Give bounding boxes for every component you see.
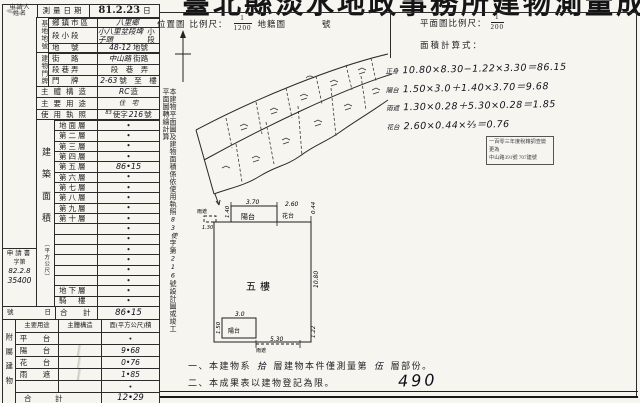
attached-area: • bbox=[101, 381, 159, 392]
floor-row: 第五層 86•15 bbox=[55, 161, 159, 171]
location-scale-label: 比例尺： bbox=[190, 18, 228, 30]
info-row-label: 鄉鎮市區 bbox=[49, 19, 97, 27]
flower-stand-width: 2.60 bbox=[285, 201, 299, 208]
info-row-value: 段 巷 弄 bbox=[97, 65, 159, 75]
floor-area-group-label: 建築面積 （平方公尺） bbox=[37, 120, 55, 306]
attached-structure bbox=[58, 381, 101, 392]
calc-line-expression: 1.50×3.0＋1.40×3.70＝9.68 bbox=[403, 78, 549, 95]
application-label: 申請書 bbox=[7, 251, 33, 258]
floor-area-value: • bbox=[127, 256, 130, 264]
printed-suffix: 地號 bbox=[133, 44, 148, 52]
info-row: 門 牌 2-63 號 至 樓 bbox=[49, 75, 159, 86]
calc-line: 雨遮 1.30×0.28＋5.30×0.28＝1.85 bbox=[386, 94, 632, 113]
applicant-cell: 申請人 姓名 bbox=[3, 5, 37, 17]
attached-row: 雨 遮 1•85 bbox=[16, 368, 159, 380]
info-row-label: 段巷弄 bbox=[49, 65, 97, 75]
calc-line-expression: 2.60×0.44×⅔＝0.76 bbox=[403, 115, 509, 131]
attached-row: 平 台 • bbox=[16, 332, 159, 344]
floor-row: 地下層 • bbox=[55, 285, 159, 295]
structure-hand: RC bbox=[119, 88, 129, 96]
calc-line-label: 正身 bbox=[385, 65, 398, 75]
attached-header-area: 面(平方公尺)積 bbox=[101, 320, 159, 332]
floor-area-value: • bbox=[127, 225, 130, 233]
left-margin-column: 申請書 字第 82.2.8 35400 bbox=[3, 17, 37, 306]
info-row: 鄉鎮市區 八里鄉 bbox=[49, 18, 159, 27]
survey-date-suffix: 日 bbox=[143, 7, 151, 15]
info-row: 街 路 中山路 街路 bbox=[49, 53, 159, 64]
footnote-1-hand-level: 伍 bbox=[374, 359, 385, 375]
bottom-balcony-label: 陽台 bbox=[228, 327, 240, 335]
floor-value: • bbox=[97, 235, 159, 244]
calc-line: 陽台 1.50×3.0＋1.40×3.70＝9.68 bbox=[386, 76, 632, 95]
area-label: 建築面積 bbox=[41, 147, 50, 235]
day-suffix: 日 bbox=[45, 310, 52, 317]
usage-value: 住 宅 bbox=[97, 98, 159, 108]
area-unit-label: （平方公尺） bbox=[43, 241, 49, 280]
floor-row: 第七層 • bbox=[55, 182, 159, 192]
left-canopy-width: 1.30 bbox=[202, 225, 213, 231]
info-row-label: 門 牌 bbox=[49, 76, 97, 86]
bottom-canopy-label: 雨遮 bbox=[256, 347, 266, 354]
structure-suffix: 造 bbox=[130, 88, 138, 96]
location-scale-fraction: 1 1200 bbox=[234, 15, 252, 32]
attached-use bbox=[16, 381, 58, 392]
floor-row: • bbox=[55, 223, 159, 233]
left-canopy-label: 雨遮 bbox=[197, 208, 207, 215]
site-lot-group-label: 基地地號 bbox=[37, 18, 49, 52]
floor-area-value: • bbox=[127, 173, 130, 181]
total-prefix: 號 日 bbox=[3, 307, 55, 319]
floor-row: • bbox=[55, 234, 159, 244]
license-mid: 使字 bbox=[113, 111, 128, 119]
usage-label: 主要用途 bbox=[37, 98, 97, 108]
attached-area-value: 1•85 bbox=[121, 371, 140, 379]
application-box: 申請書 字第 82.2.8 35400 bbox=[3, 248, 36, 306]
calc-line-expression: 10.80×8.30−1.22×3.30＝86.15 bbox=[402, 59, 566, 76]
total-label: 合 計 bbox=[55, 307, 97, 319]
floor-row: 第九層 • bbox=[55, 203, 159, 213]
handwritten-value: 中山路 bbox=[109, 55, 132, 63]
calc-line: 花台 2.60×0.44×⅔＝0.76 bbox=[386, 113, 632, 132]
floor-label: 第二層 bbox=[55, 131, 97, 140]
attached-area-value: • bbox=[129, 383, 132, 391]
floor-label: 第六層 bbox=[55, 173, 97, 182]
flower-stand-depth: 0.44 bbox=[311, 201, 317, 214]
floor-label: 第九層 bbox=[55, 204, 97, 213]
side-note-mid: 字第 bbox=[169, 240, 177, 255]
attached-total-label: 合 計 bbox=[16, 393, 101, 403]
calc-line-label: 雨遮 bbox=[386, 102, 399, 112]
total-value: 86•15 bbox=[97, 307, 159, 319]
attached-structure bbox=[58, 333, 101, 344]
info-row-label: 地 號 bbox=[49, 44, 97, 52]
side-note-pre: 本建物平面圖及建物面積係依使用執照 bbox=[169, 88, 177, 216]
info-table: 申請人 姓名 測量日期 81.2.23 日 申請書 字第 82.2.8 3540… bbox=[2, 4, 160, 403]
footnote-2: 二、本成果表以建物登記為限。 bbox=[188, 375, 548, 391]
application-no-label: 字第 bbox=[13, 260, 25, 266]
bottom-balcony-outline bbox=[222, 318, 256, 338]
survey-date-label: 測量日期 bbox=[37, 5, 89, 17]
bottom-rule-thick bbox=[150, 396, 638, 398]
top-rule bbox=[156, 12, 636, 13]
floor-row: 騎 樓 • bbox=[55, 296, 159, 306]
building-total-row: 號 日 合 計 86•15 bbox=[3, 306, 159, 319]
calc-line: 正身 10.80×8.30−1.22×3.30＝86.15 bbox=[385, 57, 631, 76]
header-row: 申請人 姓名 測量日期 81.2.23 日 bbox=[3, 5, 159, 17]
footnote-1-hand-floors: 拾 bbox=[257, 359, 268, 375]
floor-row: 第八層 • bbox=[55, 192, 159, 202]
bottom-balcony-depth: 1.50 bbox=[216, 321, 222, 334]
floor-value: • bbox=[97, 173, 159, 182]
floor-row: • bbox=[55, 265, 159, 275]
floor-value: • bbox=[97, 276, 159, 285]
floor-label bbox=[55, 276, 97, 285]
floor-value: • bbox=[97, 245, 159, 254]
floor-row: 地面層 • bbox=[55, 120, 159, 130]
floor-label: 第三層 bbox=[55, 142, 97, 151]
info-row: 地 號 48-12 地號 bbox=[49, 43, 159, 52]
no-suffix: 號 bbox=[7, 310, 14, 317]
door-plate-group-label: 建物門牌 bbox=[37, 53, 49, 86]
floor-value: • bbox=[97, 224, 159, 233]
floor-area-value: • bbox=[127, 235, 130, 243]
floor-area-value: • bbox=[127, 132, 130, 140]
page-number: 490 bbox=[398, 370, 438, 390]
total-hand: 86•15 bbox=[115, 309, 142, 318]
footnote-1-prefix: 一、本建物系 bbox=[188, 361, 251, 371]
flower-stand-label: 花台 bbox=[282, 212, 294, 220]
floor-area-table: 建築面積 （平方公尺） 地面層 • 第二層 • bbox=[37, 119, 159, 306]
door-plate-rows: 街 路 中山路 街路 段巷弄 段 巷 弄 bbox=[49, 53, 159, 86]
handwritten-value: 小八里坌段埤子頭 bbox=[98, 28, 145, 43]
wide-rows: 主體構造 RC 造 主要用途 住 宅 使用執照 83 使字 bbox=[37, 86, 159, 120]
floor-value: • bbox=[97, 204, 159, 213]
calc-line-label: 陽台 bbox=[386, 84, 399, 94]
door-plate-group: 建物門牌 街 路 中山路 街路 段巷弄 bbox=[37, 52, 159, 86]
attached-row: • bbox=[16, 380, 159, 392]
license-year: 83 bbox=[105, 111, 111, 116]
floor-row: • bbox=[55, 254, 159, 264]
floor-row: • bbox=[55, 275, 159, 285]
printed-suffix: 號 至 樓 bbox=[119, 77, 157, 85]
floor-area-value: • bbox=[127, 266, 130, 274]
structure-label: 主體構造 bbox=[37, 87, 97, 97]
license-suffix: 號 bbox=[144, 111, 152, 119]
floor-area-value: • bbox=[127, 122, 130, 130]
handwritten-value: 48-12 bbox=[109, 44, 131, 52]
info-row-value: 小八里坌段埤子頭 小段 bbox=[97, 28, 159, 43]
attached-area-value: • bbox=[129, 335, 132, 343]
floor-value: • bbox=[97, 286, 159, 295]
application-number: 35400 bbox=[8, 277, 32, 285]
usage-hand: 住 宅 bbox=[119, 100, 139, 107]
site-plan-sketch bbox=[186, 48, 398, 206]
structure-row: 主體構造 RC 造 bbox=[37, 86, 159, 97]
floor-value: • bbox=[97, 121, 159, 130]
attached-area: 0•76 bbox=[101, 357, 159, 368]
bottom-balcony-width: 3.0 bbox=[235, 311, 245, 318]
floor-value: • bbox=[97, 131, 159, 140]
side-note-hand-number: 216 bbox=[169, 255, 177, 281]
survey-date-number: 81.2.23 bbox=[98, 6, 140, 16]
floor-value: • bbox=[97, 266, 159, 275]
floor-area-value: • bbox=[127, 194, 130, 202]
info-row: 段小段 小八里坌段埤子頭 小段 bbox=[49, 27, 159, 43]
floor-label: 第四層 bbox=[55, 152, 97, 161]
floor-area-value: • bbox=[127, 297, 130, 305]
floor-label: 第七層 bbox=[55, 183, 97, 192]
stamp-box: 一百零三年度稅籍調查變更為 中山路391號 707建號 bbox=[486, 136, 554, 165]
attached-area: 9•68 bbox=[101, 345, 159, 356]
floor-area-value: • bbox=[127, 184, 130, 192]
basic-info-block: 基地地號 鄉鎮市區 八里鄉 段小段 bbox=[37, 17, 159, 119]
application-date: 82.2.8 bbox=[8, 268, 30, 275]
info-row-value: 中山路 街路 bbox=[97, 54, 159, 64]
floor-area-value: • bbox=[127, 215, 130, 223]
attached-use: 雨 遮 bbox=[16, 369, 58, 380]
attached-main: 主要用途 主體構造 面(平方公尺)積 平 台 • bbox=[16, 320, 159, 403]
floor-plan: 陽台 3.70 1.40 雨遮 1.30 花台 2.60 0.44 10.80 … bbox=[196, 196, 368, 364]
plan-scale-fraction: 1 200 bbox=[491, 14, 505, 31]
plan-scale-header: 平面圖比例尺： 1 200 bbox=[420, 14, 506, 31]
calc-line-expression: 1.30×0.28＋5.30×0.28＝1.85 bbox=[403, 96, 556, 113]
fraction-denominator: 1200 bbox=[234, 24, 252, 32]
usage-row: 主要用途 住 宅 bbox=[37, 97, 159, 108]
footnote-1-suffix: 層部份。 bbox=[391, 361, 433, 371]
floor-label: 騎 樓 bbox=[55, 297, 97, 306]
printed-suffix: 街路 bbox=[133, 55, 148, 63]
area-calculations: 正身 10.80×8.30−1.22×3.30＝86.15 陽台 1.50×3.… bbox=[385, 57, 632, 136]
attached-structure bbox=[58, 345, 101, 356]
floor-label: 第八層 bbox=[55, 193, 97, 202]
left-canopy-outline bbox=[204, 216, 216, 222]
side-note-vertical: 本建物平面圖及建物面積係依使用執照83使字第216號設計圖或竣工平面圖轉繪計算 bbox=[161, 88, 176, 336]
floor-area-value: 86•15 bbox=[116, 163, 141, 171]
floor-value: • bbox=[97, 142, 159, 151]
footnote-1: 一、本建物系拾層建物本件僅測量第伍層部份。 bbox=[188, 358, 548, 375]
lot-label-scribbles bbox=[222, 68, 380, 168]
attached-total-row: 合 計 12•29 bbox=[16, 392, 159, 403]
attached-rows: 平 台 • 陽 台 9•68 bbox=[16, 332, 159, 392]
attached-area: • bbox=[101, 333, 159, 344]
floor-value: • bbox=[97, 255, 159, 264]
attached-group-label: 附屬建物 bbox=[3, 320, 16, 403]
floor-area-value: • bbox=[127, 204, 130, 212]
survey-date-value: 81.2.23 日 bbox=[89, 5, 159, 17]
sheet-number-label: 號 bbox=[322, 18, 331, 30]
attached-header-use: 主要用途 bbox=[16, 320, 58, 332]
floor-row: 第四層 • bbox=[55, 151, 159, 161]
floor-value: 86•15 bbox=[97, 162, 159, 171]
floor-area-value: • bbox=[127, 153, 130, 161]
attached-total-hand: 12•29 bbox=[117, 394, 144, 403]
attached-row: 花 台 0•76 bbox=[16, 356, 159, 368]
top-balcony-label: 陽台 bbox=[241, 212, 255, 221]
side-note-hand-year: 83使 bbox=[169, 216, 177, 240]
floor-label: 地面層 bbox=[55, 121, 97, 130]
stamp-line-2: 中山路391號 707建號 bbox=[489, 155, 551, 163]
footnotes: 一、本建物系拾層建物本件僅測量第伍層部份。 二、本成果表以建物登記為限。 bbox=[188, 358, 548, 391]
attached-area-value: 0•76 bbox=[121, 359, 140, 367]
floor-value: • bbox=[97, 183, 159, 192]
floor-value: • bbox=[97, 193, 159, 202]
attached-structure bbox=[58, 357, 101, 368]
floor-row: 第三層 • bbox=[55, 141, 159, 151]
corner-dim: 1.22 bbox=[311, 325, 317, 338]
attached-structure bbox=[58, 369, 101, 380]
right-height-dim: 10.80 bbox=[313, 271, 320, 288]
calc-line-label: 花台 bbox=[386, 121, 399, 131]
attached-total-value: 12•29 bbox=[101, 393, 159, 403]
attached-header-structure: 主體構造 bbox=[58, 320, 101, 332]
floor-row: 第十層 • bbox=[55, 213, 159, 223]
fraction-denominator: 200 bbox=[491, 23, 505, 31]
plan-scale-label: 平面圖比例尺： bbox=[420, 17, 487, 29]
cadastral-map-label: 地籍圖 bbox=[258, 18, 287, 30]
floor-label: 地下層 bbox=[55, 286, 97, 295]
top-balcony-depth: 1.40 bbox=[225, 205, 231, 218]
fraction-numerator: 1 bbox=[234, 15, 252, 24]
bottom-canopy-width: 5.30 bbox=[270, 336, 284, 343]
attached-area-value: 9•68 bbox=[121, 347, 140, 355]
attached-structures-table: 附屬建物 主要用途 主體構造 面(平方公尺)積 平 台 • bbox=[3, 319, 159, 403]
printed-suffix: 段 巷 弄 bbox=[111, 66, 149, 74]
handwritten-value: 2-63 bbox=[100, 77, 117, 85]
floor-label bbox=[55, 266, 97, 275]
floor-area-value: • bbox=[127, 277, 130, 285]
floor-label: 第五層 bbox=[55, 162, 97, 171]
attached-use: 陽 台 bbox=[16, 345, 58, 356]
info-row-value: 八里鄉 bbox=[97, 19, 159, 27]
floor-value: • bbox=[97, 214, 159, 223]
structure-value: RC 造 bbox=[97, 87, 159, 97]
floor-label: 第十層 bbox=[55, 214, 97, 223]
fraction-numerator: 1 bbox=[491, 14, 505, 23]
attached-row: 陽 台 9•68 bbox=[16, 344, 159, 356]
floor-area-value: • bbox=[127, 142, 130, 150]
handwritten-value: 八里鄉 bbox=[116, 19, 139, 27]
attached-header-row: 主要用途 主體構造 面(平方公尺)積 bbox=[16, 320, 159, 332]
area-calc-label: 面積計算式： bbox=[420, 39, 483, 51]
floor-area-value: • bbox=[127, 246, 130, 254]
center-floor-label: 五樓 bbox=[246, 280, 274, 293]
info-row-value: 48-12 地號 bbox=[97, 44, 159, 52]
footnote-1-mid: 層建物本件僅測量第 bbox=[274, 361, 369, 371]
info-row-value: 2-63 號 至 樓 bbox=[97, 76, 159, 86]
info-row: 段巷弄 段 巷 弄 bbox=[49, 64, 159, 75]
top-balcony-width: 3.70 bbox=[246, 199, 260, 206]
floor-row: • bbox=[55, 244, 159, 254]
info-row-label: 段小段 bbox=[49, 28, 97, 43]
floor-row: 第二層 • bbox=[55, 130, 159, 140]
attached-area: 1•85 bbox=[101, 369, 159, 380]
attached-use: 花 台 bbox=[16, 357, 58, 368]
floor-value: • bbox=[97, 297, 159, 306]
floor-label bbox=[55, 245, 97, 254]
floor-label bbox=[55, 235, 97, 244]
right-border bbox=[636, 12, 637, 397]
floor-row: 第六層 • bbox=[55, 172, 159, 182]
floor-rows: 地面層 • 第二層 • 第三層 bbox=[55, 120, 159, 306]
survey-result-sheet: 臺北縣淡水地政事務所建物測量成果圖 申請人 姓名 測量日期 81.2.23 日 … bbox=[0, 0, 640, 403]
stamp-line-1: 一百零三年度稅籍調查變更為 bbox=[489, 139, 551, 155]
attached-use: 平 台 bbox=[16, 333, 58, 344]
floor-area-value: • bbox=[127, 287, 130, 295]
floor-label bbox=[55, 255, 97, 264]
info-row-label: 街 路 bbox=[49, 54, 97, 64]
site-lot-group: 基地地號 鄉鎮市區 八里鄉 段小段 bbox=[37, 18, 159, 52]
site-lot-rows: 鄉鎮市區 八里鄉 段小段 小八里坌段埤子頭 小段 bbox=[49, 18, 159, 52]
floor-value: • bbox=[97, 152, 159, 161]
license-number: 216 bbox=[129, 111, 143, 119]
floor-label bbox=[55, 224, 97, 233]
